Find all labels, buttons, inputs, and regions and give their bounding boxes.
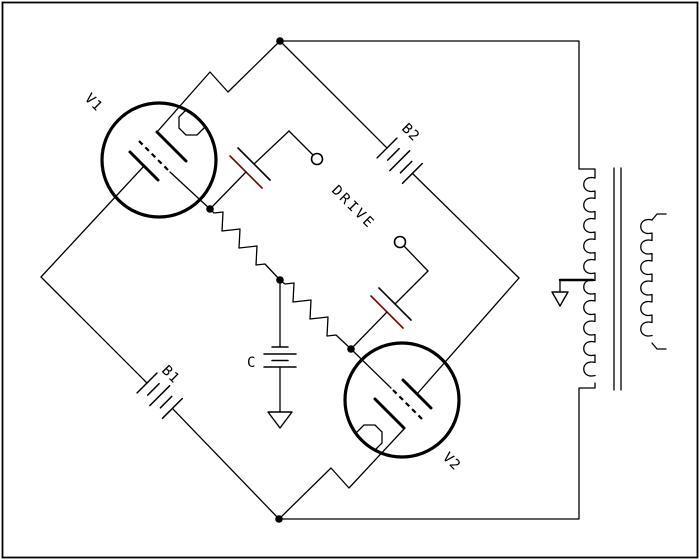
- ground-arrow-icon: [552, 292, 568, 306]
- v2-cathode-lead: [279, 429, 404, 519]
- drive-terminal-2: [395, 237, 429, 272]
- label-b2: B2: [398, 121, 423, 146]
- v2-grid-lead: [351, 349, 391, 388]
- coupling-capacitor-2: [351, 271, 428, 349]
- v2-plate-lead: [417, 278, 519, 394]
- resistor-2: [281, 281, 351, 349]
- bottom-rail-wire: [279, 383, 595, 519]
- drive-terminal-1: [289, 131, 323, 165]
- label-v1: V1: [81, 91, 106, 116]
- top-rail-wire: [280, 41, 595, 178]
- ground-arrow-icon: [268, 412, 292, 428]
- b1-lead: [41, 277, 147, 383]
- cap1-lead-top: [254, 131, 289, 164]
- circuit-schematic: V1 V2 B1 B2 DRIVE C: [0, 0, 700, 560]
- circuit-schematic-page: V1 V2 B1 B2 DRIVE C: [0, 0, 700, 560]
- primary-winding: [584, 177, 595, 376]
- terminal-circle-icon: [312, 154, 323, 165]
- b2-lead2: [412, 173, 519, 278]
- cap2-lead-top: [395, 271, 428, 304]
- vacuum-tube-v2: [345, 343, 459, 457]
- secondary-lead-bottom: [652, 343, 666, 349]
- junction-dot: [275, 515, 283, 523]
- label-b1: B1: [158, 363, 183, 388]
- b1-lead2: [172, 408, 279, 519]
- battery-b1: [41, 277, 279, 519]
- secondary-lead-top: [652, 214, 666, 220]
- resistor-1: [210, 209, 280, 280]
- junction-dot: [206, 205, 214, 213]
- junction-dot: [347, 345, 355, 353]
- cap2-lead-bottom: [351, 312, 387, 349]
- terminal-circle-icon: [395, 237, 406, 248]
- output-transformer: [552, 168, 666, 390]
- label-v2: V2: [439, 450, 464, 475]
- v1-cathode-lead: [157, 41, 280, 132]
- v1-plate-lead: [41, 166, 144, 277]
- label-drive: DRIVE: [328, 183, 378, 233]
- junction-dot: [276, 276, 284, 284]
- cap1-lead-bottom: [210, 172, 246, 209]
- label-c: C: [247, 355, 256, 371]
- vacuum-tube-v1: [102, 103, 216, 217]
- t2-lead: [404, 246, 428, 271]
- t1-lead: [289, 131, 313, 155]
- coupling-capacitor-1: [210, 131, 289, 209]
- v1-grid-lead: [170, 172, 210, 209]
- b2-lead: [280, 41, 387, 148]
- junction-dot: [276, 37, 284, 45]
- bias-battery-c: [264, 280, 296, 428]
- secondary-winding: [641, 219, 652, 336]
